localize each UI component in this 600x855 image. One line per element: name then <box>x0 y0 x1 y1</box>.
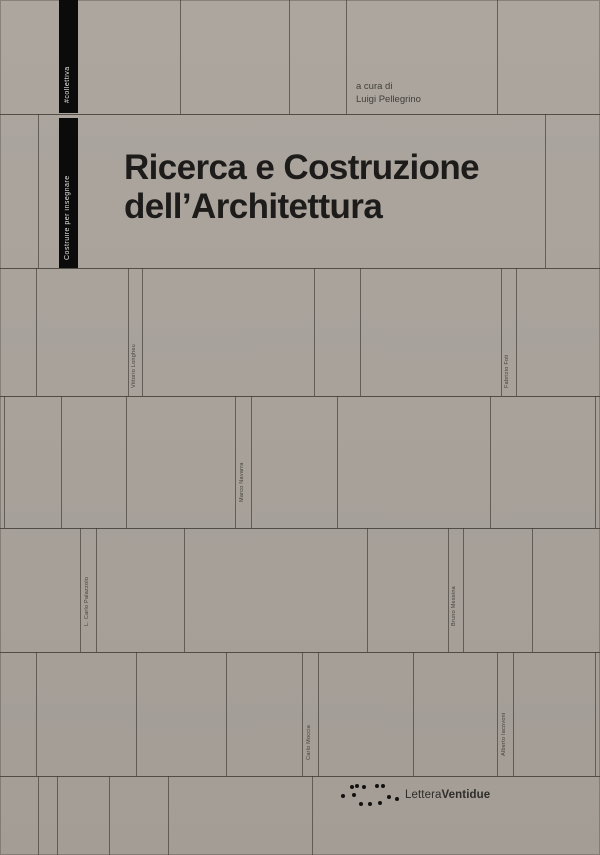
joint-line-vertical <box>367 528 368 652</box>
editor-credit: a cura di Luigi Pellegrino <box>356 80 421 106</box>
book-cover: #collettiva Costruire per insegnare a cu… <box>0 0 600 855</box>
joint-line-horizontal <box>0 114 600 115</box>
joint-line-vertical <box>180 0 181 114</box>
joint-line-vertical <box>168 776 169 855</box>
editor-name: Luigi Pellegrino <box>356 93 421 106</box>
publisher-wordmark: LetteraVentidue <box>405 789 490 801</box>
joint-line-vertical <box>360 268 361 396</box>
book-title: Ricerca e Costruzione dell’Architettura <box>124 148 544 226</box>
joint-line-vertical <box>497 0 498 114</box>
logo-dot <box>359 802 363 806</box>
publisher-name-light: Lettera <box>405 789 442 801</box>
joint-line-vertical <box>61 396 62 528</box>
joint-line-vertical <box>36 268 37 396</box>
joint-line-vertical <box>545 114 546 268</box>
joint-line-vertical <box>595 652 596 776</box>
book-title-line1: Ricerca e Costruzione <box>124 148 544 187</box>
contributor-name: Carlo Moccia <box>306 684 314 760</box>
joint-line-horizontal <box>0 528 600 529</box>
joint-line-horizontal <box>0 776 600 777</box>
contributor-name: Vittorio Longheu <box>131 296 139 388</box>
joint-line-vertical <box>142 268 143 396</box>
joint-line-vertical <box>109 776 110 855</box>
joint-line-vertical <box>490 396 491 528</box>
joint-line-vertical <box>96 528 97 652</box>
publisher-name-bold: Ventidue <box>442 789 491 801</box>
editor-prefix: a cura di <box>356 80 421 93</box>
joint-line-vertical <box>126 396 127 528</box>
joint-line-vertical <box>36 652 37 776</box>
joint-line-vertical <box>516 268 517 396</box>
logo-dot <box>362 785 366 789</box>
joint-line-vertical <box>513 652 514 776</box>
joint-line-vertical <box>318 652 319 776</box>
spine-series-tag: #collettiva <box>64 8 73 103</box>
joint-line-vertical <box>314 268 315 396</box>
contributor-name: Fabrizio Foti <box>504 308 512 388</box>
joint-line-vertical <box>136 652 137 776</box>
joint-line-vertical <box>38 114 39 268</box>
joint-line-vertical <box>413 652 414 776</box>
joint-line-vertical <box>532 528 533 652</box>
joint-line-vertical <box>57 776 58 855</box>
logo-dot <box>395 797 399 801</box>
joint-line-vertical <box>346 0 347 114</box>
contributor-name: Bruno Messina <box>451 548 459 626</box>
contributor-name: Marco Navarra <box>239 420 247 502</box>
logo-dot <box>355 784 359 788</box>
joint-line-vertical <box>4 396 5 528</box>
logo-dot <box>381 784 385 788</box>
joint-line-vertical <box>337 396 338 528</box>
logo-dot <box>375 784 379 788</box>
joint-line-horizontal <box>0 652 600 653</box>
joint-line-vertical <box>235 396 236 528</box>
joint-line-vertical <box>128 268 129 396</box>
logo-dot <box>387 795 391 799</box>
joint-line-vertical <box>501 268 502 396</box>
joint-line-vertical <box>184 528 185 652</box>
joint-line-vertical <box>226 652 227 776</box>
spine-band-bottom: Costruire per insegnare <box>59 118 78 268</box>
joint-line-vertical <box>38 776 39 855</box>
joint-line-horizontal <box>0 268 600 269</box>
contributor-name: L. Carlo Palazzolo <box>84 534 92 626</box>
book-title-line2: dell’Architettura <box>124 187 544 226</box>
joint-line-vertical <box>289 0 290 114</box>
spine-band-top: #collettiva <box>59 0 78 113</box>
joint-line-horizontal <box>0 396 600 397</box>
joint-line-vertical <box>80 528 81 652</box>
logo-dot <box>350 785 354 789</box>
joint-line-vertical <box>251 396 252 528</box>
logo-dot <box>368 802 372 806</box>
joint-line-vertical <box>497 652 498 776</box>
spine-series-title: Costruire per insegnare <box>64 124 73 260</box>
joint-line-vertical <box>463 528 464 652</box>
logo-dot <box>378 801 382 805</box>
logo-dot <box>352 793 356 797</box>
logo-dot <box>341 794 345 798</box>
contributor-name: Alberto Iacovoni <box>501 676 509 756</box>
joint-line-vertical <box>448 528 449 652</box>
joint-line-vertical <box>595 396 596 528</box>
joint-line-vertical <box>312 776 313 855</box>
joint-line-vertical <box>302 652 303 776</box>
